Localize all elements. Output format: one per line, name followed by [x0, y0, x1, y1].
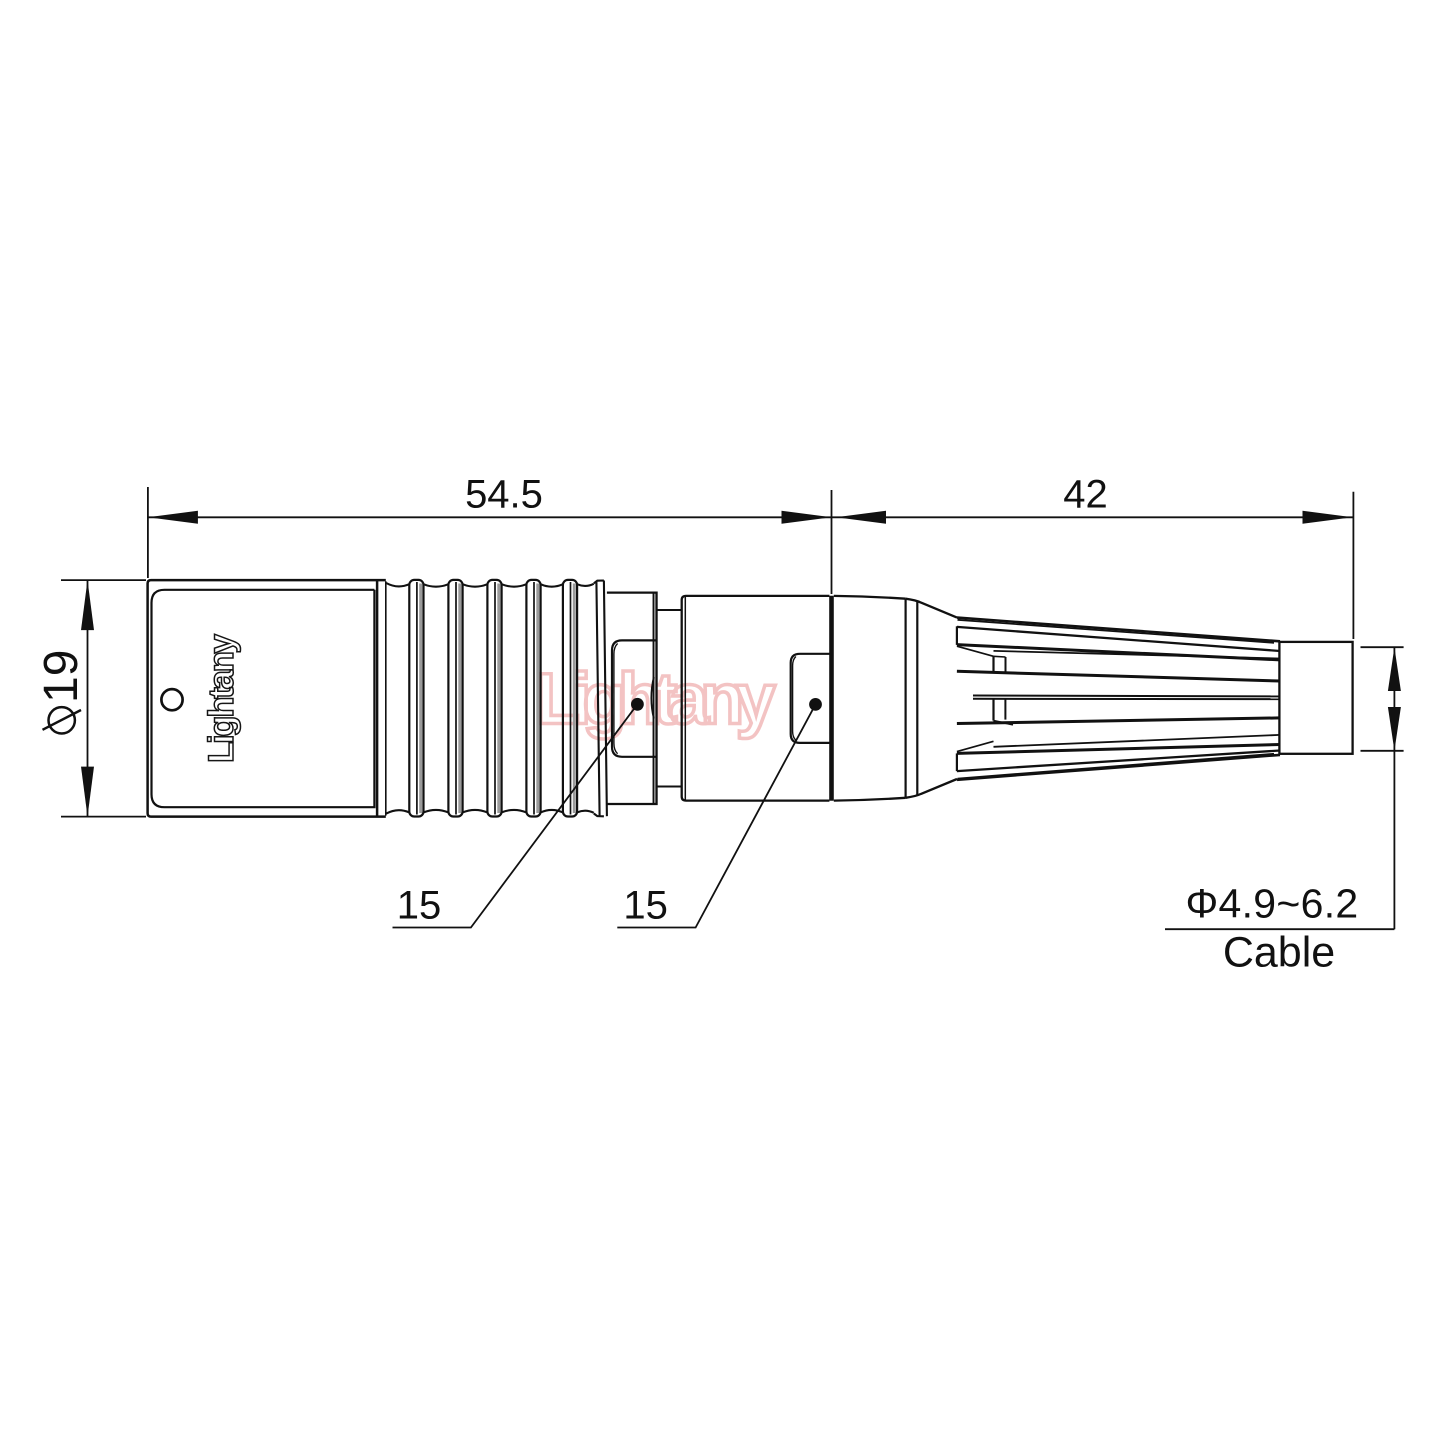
- svg-text:19: 19: [35, 650, 88, 703]
- svg-text:Cable: Cable: [1223, 929, 1335, 977]
- svg-text:15: 15: [397, 884, 442, 928]
- svg-text:Lightany: Lightany: [202, 633, 241, 763]
- svg-text:42: 42: [1063, 473, 1108, 517]
- svg-text:15: 15: [623, 884, 668, 928]
- svg-text:Φ4.9~6.2: Φ4.9~6.2: [1185, 881, 1358, 927]
- svg-text:54.5: 54.5: [465, 473, 543, 517]
